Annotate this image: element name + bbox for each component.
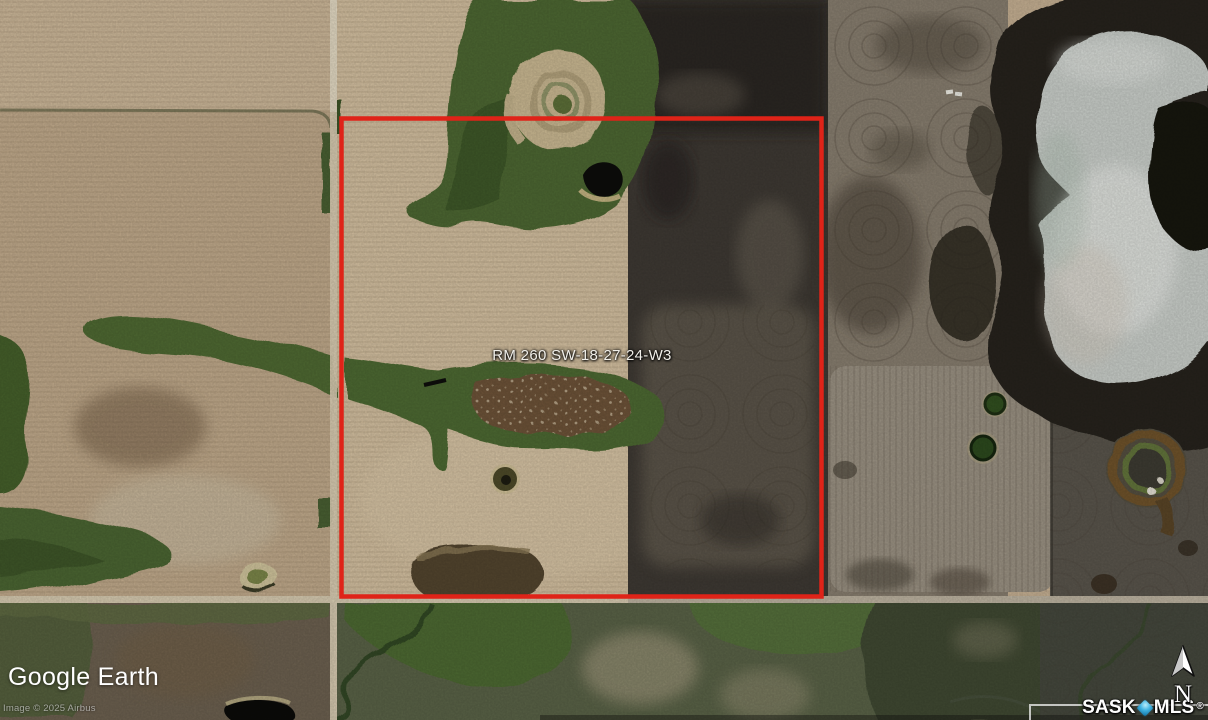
north-label: N: [1163, 682, 1203, 707]
parcel-label: RM 260 SW-18-27-24-W3: [492, 347, 671, 364]
google-earth-logo: Google Earth: [8, 663, 159, 692]
mls-diamond-icon: [1136, 700, 1153, 717]
imagery-credit: Image © 2025 Airbus: [3, 703, 96, 714]
north-arrow-icon: [1163, 644, 1203, 680]
north-arrow: N: [1163, 644, 1203, 707]
satellite-map-screenshot: RM 260 SW-18-27-24-W3 Google Earth Image…: [0, 0, 1208, 720]
mls-wordmark-left: SASK: [1082, 697, 1136, 719]
